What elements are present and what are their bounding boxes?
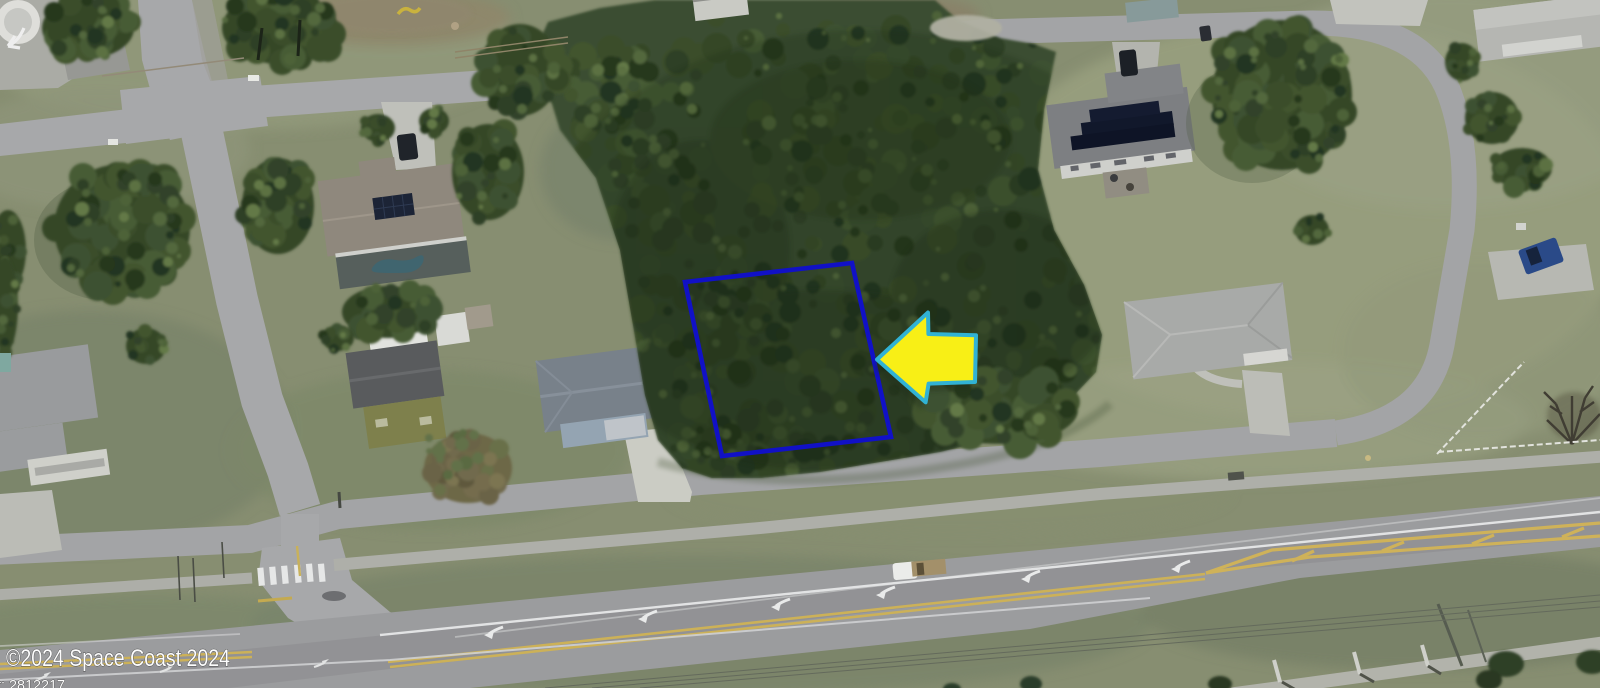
svg-text:t: 2812217: t: 2812217 (0, 677, 65, 688)
svg-text:©2024 Space Coast 2024: ©2024 Space Coast 2024 (6, 645, 230, 672)
